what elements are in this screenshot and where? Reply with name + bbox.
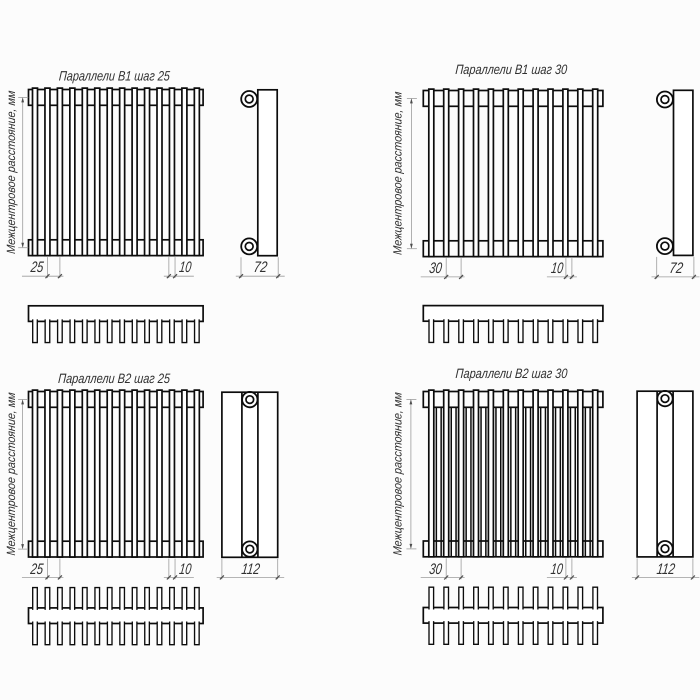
svg-text:25: 25 [29, 259, 45, 276]
svg-text:112: 112 [241, 560, 262, 577]
svg-text:30: 30 [428, 560, 443, 577]
svg-text:72: 72 [668, 259, 684, 277]
svg-text:Параллели В2 шаг 25: Параллели В2 шаг 25 [58, 371, 171, 386]
svg-text:72: 72 [253, 258, 269, 276]
svg-text:25: 25 [29, 560, 45, 577]
svg-text:Межцентровое расстояние, мм: Межцентровое расстояние, мм [392, 392, 405, 556]
svg-text:112: 112 [656, 560, 677, 577]
svg-text:30: 30 [428, 259, 443, 276]
svg-text:Параллели В1 шаг 25: Параллели В1 шаг 25 [58, 68, 170, 83]
svg-text:Межцентровое расстояние, мм: Межцентровое расстояние, мм [5, 90, 18, 254]
svg-text:Межцентровое расстояние, мм: Межцентровое расстояние, мм [5, 392, 18, 556]
svg-text:Межцентровое расстояние, мм: Межцентровое расстояние, мм [392, 91, 405, 255]
svg-text:Параллели В1 шаг 30: Параллели В1 шаг 30 [455, 62, 568, 77]
svg-text:Параллели В2 шаг 30: Параллели В2 шаг 30 [455, 366, 568, 381]
